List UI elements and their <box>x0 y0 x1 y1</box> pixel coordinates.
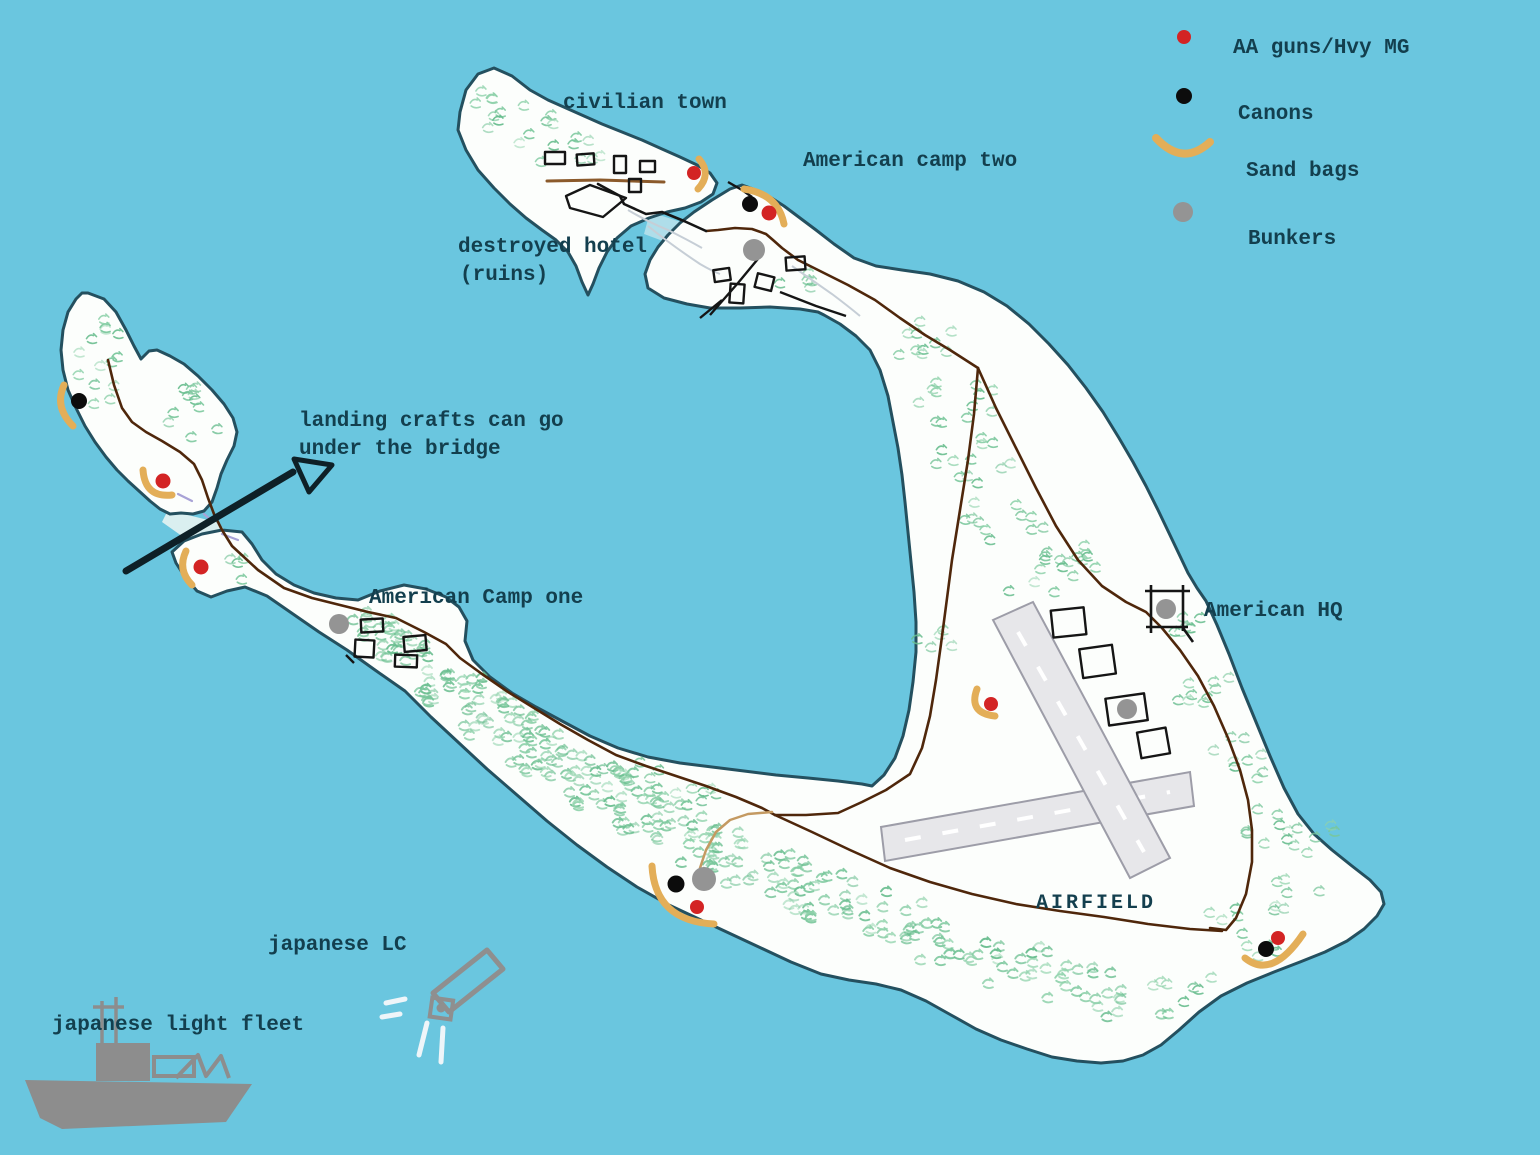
canon-marker <box>668 876 685 893</box>
ship-bridge <box>96 1043 150 1081</box>
legend-bunker-icon <box>1173 202 1193 222</box>
aa-gun-marker <box>1271 931 1285 945</box>
aa-gun-marker <box>690 900 704 914</box>
canon-marker <box>71 393 87 409</box>
bunker-marker <box>1117 699 1137 719</box>
wake-streak <box>441 1028 443 1062</box>
legend-aa-gun-icon <box>1177 30 1191 44</box>
label-civilian-town: civilian town <box>563 92 727 115</box>
lc-bow-dot <box>437 1004 446 1013</box>
bunker-marker <box>1156 599 1176 619</box>
label-landing-crafts-2: under the bridge <box>299 438 501 461</box>
island-strategy-map: civilian town American camp two destroye… <box>0 0 1540 1155</box>
canon-marker <box>1258 941 1274 957</box>
legend-aa-gun-label: AA guns/Hvy MG <box>1233 37 1409 60</box>
ship-hull <box>25 1080 252 1129</box>
aa-gun-marker <box>762 206 777 221</box>
aa-gun-marker <box>156 474 171 489</box>
label-destroyed-hotel: destroyed hotel <box>458 236 647 259</box>
label-landing-crafts-1: landing crafts can go <box>299 410 564 433</box>
aa-gun-marker <box>984 697 998 711</box>
label-airfield: AIRFIELD <box>1036 892 1156 915</box>
label-american-camp-two: American camp two <box>803 150 1017 173</box>
legend-canon-label: Canons <box>1238 103 1314 126</box>
wake-streak <box>382 1014 400 1017</box>
label-destroyed-hotel-ruins: (ruins) <box>460 264 548 287</box>
bunker-marker <box>692 867 716 891</box>
bunker-marker <box>743 239 765 261</box>
label-american-camp-one: American Camp one <box>369 587 583 610</box>
legend-sandbag-label: Sand bags <box>1246 160 1359 183</box>
aa-gun-marker <box>194 560 209 575</box>
map-canvas: civilian town American camp two destroye… <box>0 0 1540 1155</box>
aa-gun-marker <box>687 166 701 180</box>
legend-bunker-label: Bunkers <box>1248 228 1336 251</box>
label-japanese-light-fleet: japanese light fleet <box>52 1014 304 1037</box>
bunker-marker <box>329 614 349 634</box>
legend-canon-icon <box>1176 88 1192 104</box>
canon-marker <box>742 196 758 212</box>
label-japanese-lc: japanese LC <box>268 934 407 957</box>
label-american-hq: American HQ <box>1204 600 1343 623</box>
